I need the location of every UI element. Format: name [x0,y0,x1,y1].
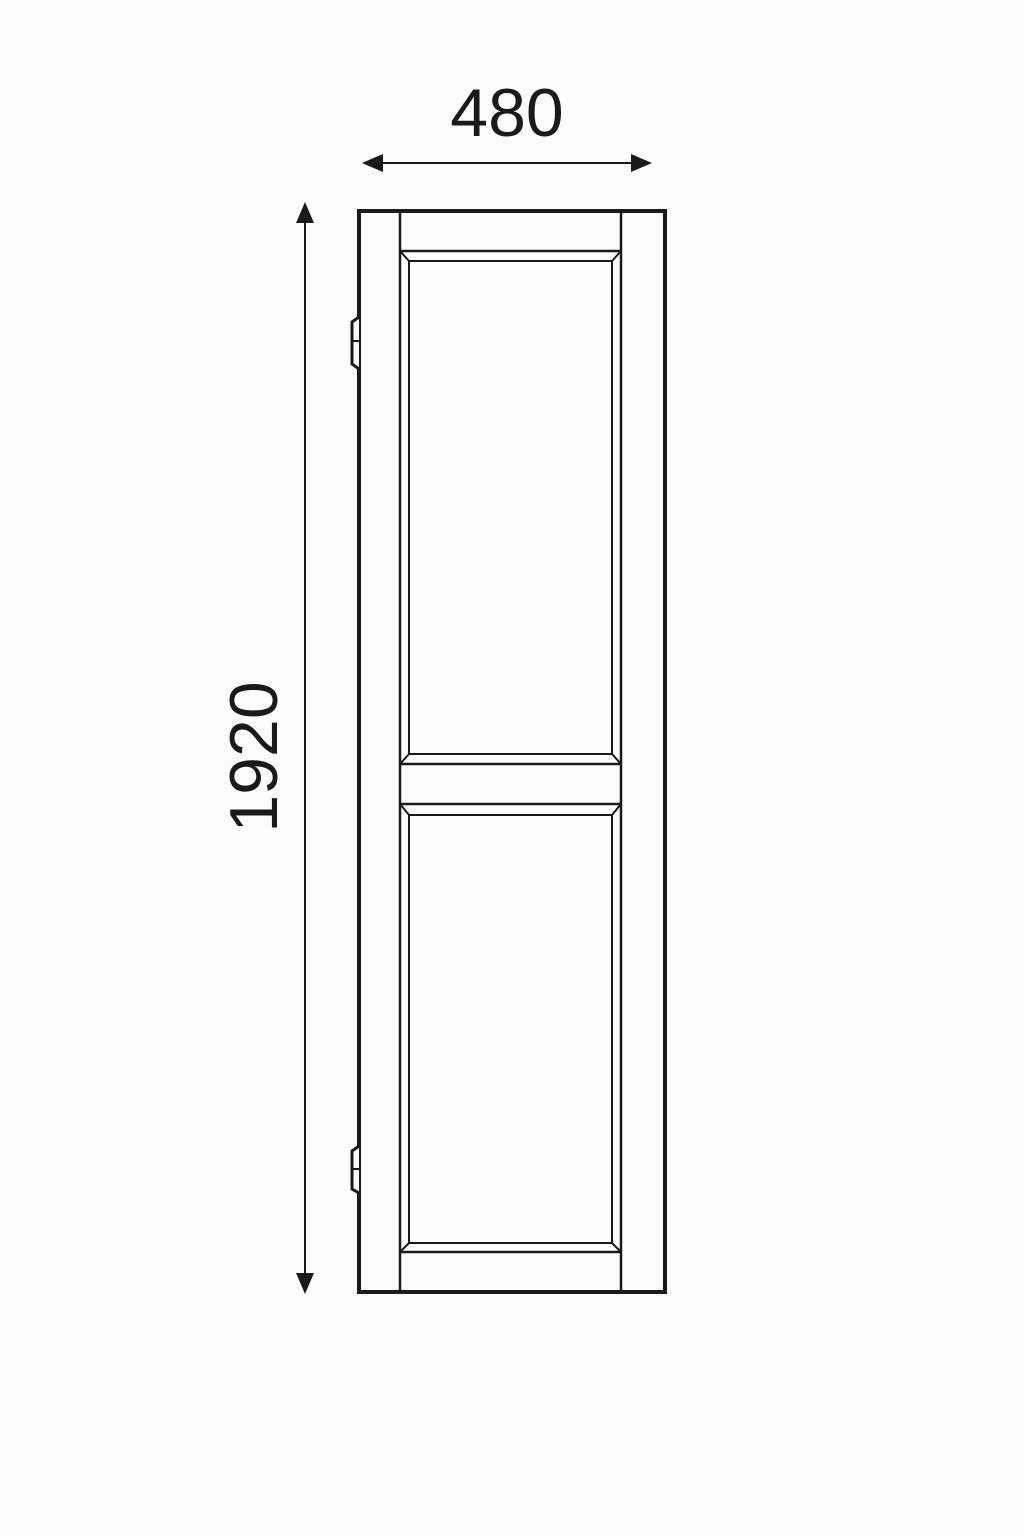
door [352,211,665,1292]
width-dimension-label: 480 [450,75,563,151]
height-arrowhead-bottom-icon [296,1273,314,1294]
door-technical-drawing: 480 1920 [0,0,1024,1536]
height-dimension-label: 1920 [216,681,292,832]
width-arrowhead-right-icon [631,154,652,172]
height-arrowhead-top-icon [296,202,314,223]
drawing-canvas: 480 1920 [0,0,1024,1536]
hinge-top [352,317,360,369]
width-dimension: 480 [362,75,652,172]
hinge-bottom [352,1146,360,1193]
height-dimension: 1920 [216,202,314,1294]
door-outline [359,211,665,1292]
hinge-top-body [352,317,359,369]
width-arrowhead-left-icon [362,154,383,172]
